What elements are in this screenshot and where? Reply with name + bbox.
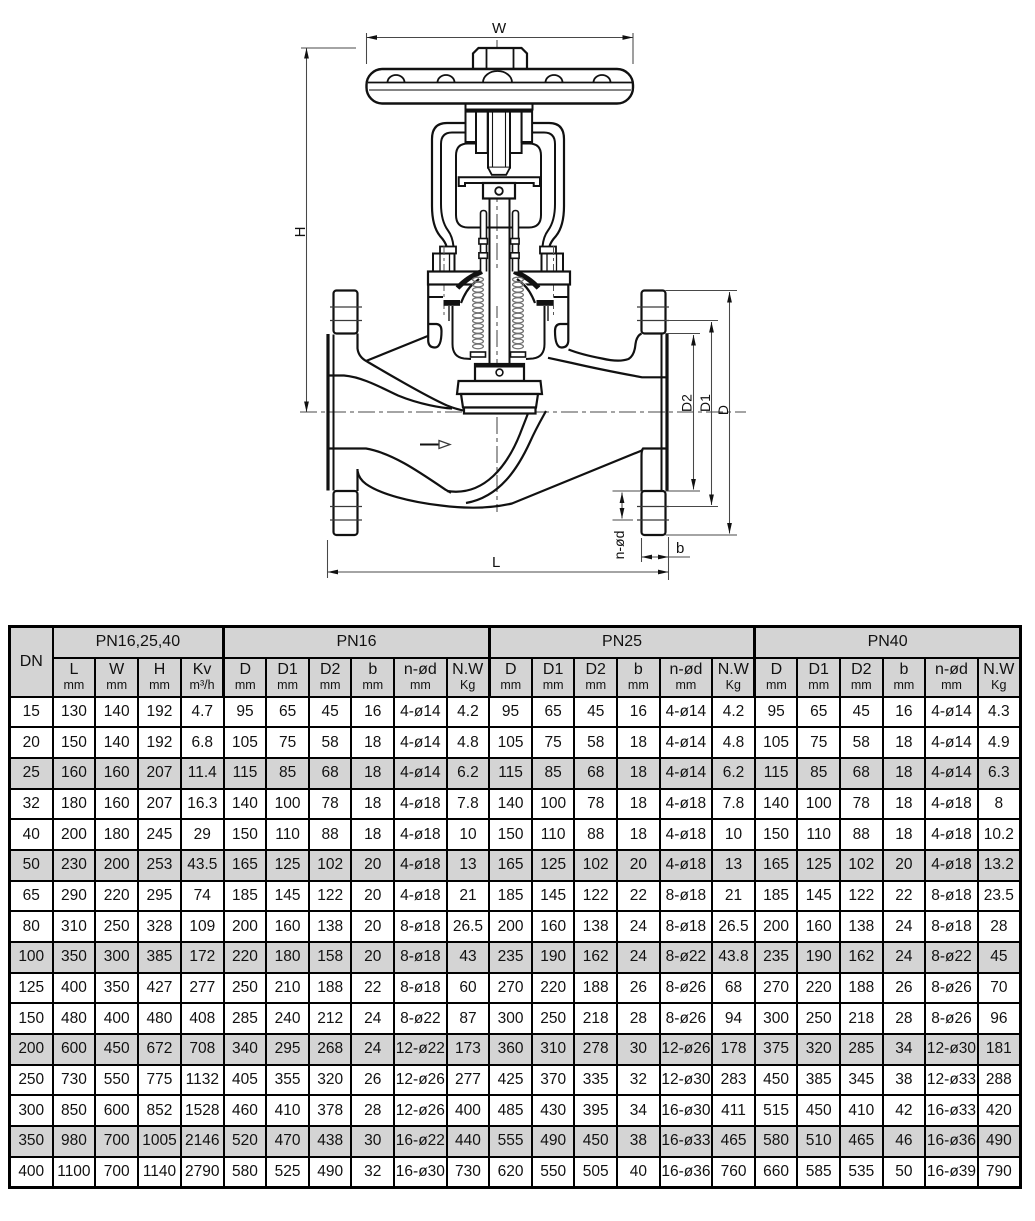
svg-text:W: W [492, 20, 507, 37]
svg-text:L: L [492, 554, 500, 571]
svg-text:D2: D2 [679, 394, 695, 412]
svg-text:b: b [676, 540, 684, 557]
svg-text:n-ød: n-ød [611, 531, 627, 560]
svg-text:D1: D1 [697, 394, 713, 412]
svg-text:H: H [292, 227, 309, 238]
svg-text:D: D [715, 405, 731, 415]
